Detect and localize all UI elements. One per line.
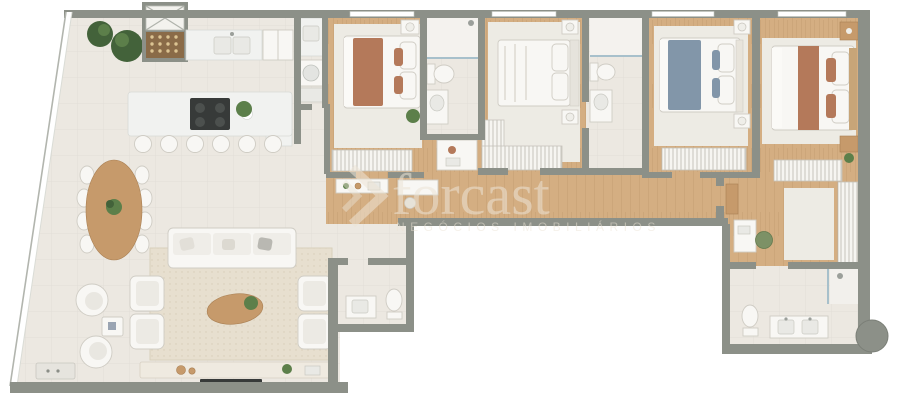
powder-right-wall <box>406 218 414 332</box>
island-plant <box>236 101 252 117</box>
headboard <box>736 40 743 112</box>
bath1-bed2-wall <box>478 14 485 140</box>
basin <box>352 300 368 313</box>
bedroom-plant <box>844 153 854 163</box>
lamp <box>738 117 746 125</box>
shower-area <box>590 16 642 56</box>
cabinet-knob <box>56 369 59 372</box>
bed1-bath1-wall <box>420 14 427 140</box>
side-table-decor <box>108 322 116 330</box>
laundry-sink <box>303 26 319 41</box>
console-vase <box>177 366 186 375</box>
bedroom-plant <box>406 109 420 123</box>
throw-pillow <box>257 237 273 251</box>
nightstand-decor <box>846 28 852 34</box>
bedroom-2 <box>482 20 580 170</box>
cushion <box>394 76 403 94</box>
lounge-chair-cushion <box>89 342 107 360</box>
walk-in-closet-shelves <box>838 182 858 266</box>
laundry-wall <box>322 14 328 108</box>
table-centerpiece-plant <box>106 200 114 208</box>
cooktop <box>190 98 230 130</box>
kitchen-plant <box>98 24 110 36</box>
burner <box>195 103 205 113</box>
corridor-end-wall <box>716 178 724 186</box>
kitchen-plant <box>115 33 129 47</box>
bed-blanket <box>668 40 701 110</box>
cabinet-knob <box>46 369 49 372</box>
shower-head <box>837 273 843 279</box>
watermark-tagline-text: NEGÓCIOS IMOBILIÁRIOS <box>396 219 661 234</box>
console-box <box>305 366 320 375</box>
wardrobe <box>662 148 746 170</box>
pillow <box>552 73 568 100</box>
bed-fold <box>344 38 353 106</box>
cushion <box>826 94 836 118</box>
pillow <box>718 44 734 72</box>
headboard <box>849 48 857 130</box>
basin <box>802 320 818 334</box>
bed1-left-wall <box>324 104 330 174</box>
cushion <box>826 58 836 82</box>
kitchen-wall <box>294 14 301 144</box>
burner <box>215 103 225 113</box>
faucet <box>784 317 787 320</box>
faucet <box>230 32 234 36</box>
floor-plan-screenshot: forcast NEGÓCIOS IMOBILIÁRIOS <box>0 0 900 411</box>
lounge-chair-cushion <box>85 292 103 310</box>
low-cabinet <box>36 363 75 379</box>
console-vase <box>189 368 195 374</box>
kitchen-sink <box>233 37 250 54</box>
floor-plan-rendering: forcast NEGÓCIOS IMOBILIÁRIOS <box>0 0 900 411</box>
pillow <box>718 76 734 104</box>
dining-area <box>77 160 152 260</box>
toilet <box>742 305 758 327</box>
shower-head <box>468 20 474 26</box>
burner <box>195 117 205 127</box>
nook-decor <box>448 146 456 154</box>
toilet <box>386 289 402 311</box>
bottom-wall <box>10 382 348 393</box>
washer-drum <box>303 65 319 81</box>
watermark-brand-text: forcast <box>392 162 550 227</box>
shower-area <box>830 268 860 304</box>
console-decor <box>355 183 361 189</box>
closet-rug <box>784 188 834 260</box>
right-wall <box>858 12 870 354</box>
office-chair <box>756 232 773 249</box>
coffee-table-plant <box>244 296 258 310</box>
living-east-wall <box>328 258 338 382</box>
toilet <box>597 64 615 80</box>
shelf-unit <box>726 184 738 214</box>
bed2-bath2-wall <box>582 14 589 102</box>
bed-fold <box>772 48 782 128</box>
pillow <box>552 44 568 71</box>
master-mid-wall <box>788 262 862 269</box>
bath1-south-wall <box>420 134 484 140</box>
master-mid-wall <box>730 262 756 269</box>
lamp <box>406 23 414 31</box>
basin <box>594 94 608 110</box>
cushion <box>394 48 403 66</box>
structural-column <box>856 320 888 352</box>
lamp <box>738 23 746 31</box>
corridor-end-wall <box>716 206 724 222</box>
laundry-room <box>298 18 324 102</box>
headboard <box>570 40 579 106</box>
bed3-south-wall <box>642 172 672 178</box>
desk <box>734 220 756 252</box>
master-bottom-wall <box>722 344 872 354</box>
laundry-cabinet <box>298 88 324 102</box>
toilet-tank <box>743 328 758 336</box>
bed-blanket <box>798 46 819 130</box>
lamp <box>566 113 574 121</box>
console-plant <box>282 364 292 374</box>
armchair-cushion <box>303 281 326 306</box>
laundry-south-wall <box>298 104 312 110</box>
cushion <box>712 50 720 70</box>
wardrobe <box>774 160 842 181</box>
armchair-cushion <box>136 281 159 306</box>
bed-fold <box>660 40 668 110</box>
faucet <box>808 317 811 320</box>
kitchen-sink <box>214 37 231 54</box>
basin <box>430 95 444 111</box>
armchair-cushion <box>303 319 326 344</box>
toilet <box>434 65 454 83</box>
nightstand <box>840 136 858 152</box>
kitchen-plant <box>111 30 143 62</box>
bath2-south-wall <box>582 168 646 175</box>
bed3-left-wall <box>642 14 649 172</box>
toilet-tank <box>387 312 402 319</box>
lamp <box>566 23 574 31</box>
master-left-wall <box>722 224 730 350</box>
bed3-bed4-wall <box>752 14 760 178</box>
basin <box>778 320 794 334</box>
cushion <box>712 78 720 98</box>
top-wall <box>64 10 870 18</box>
bed2-bath2-wall <box>582 128 589 175</box>
desk-item <box>738 226 750 234</box>
throw-pillow <box>222 239 235 250</box>
powder-bottom-wall <box>334 324 414 332</box>
tv-console <box>140 362 332 378</box>
burner <box>215 117 225 127</box>
bed3-south-wall <box>700 172 758 178</box>
bed-blanket <box>353 38 383 106</box>
armchair-cushion <box>136 319 159 344</box>
